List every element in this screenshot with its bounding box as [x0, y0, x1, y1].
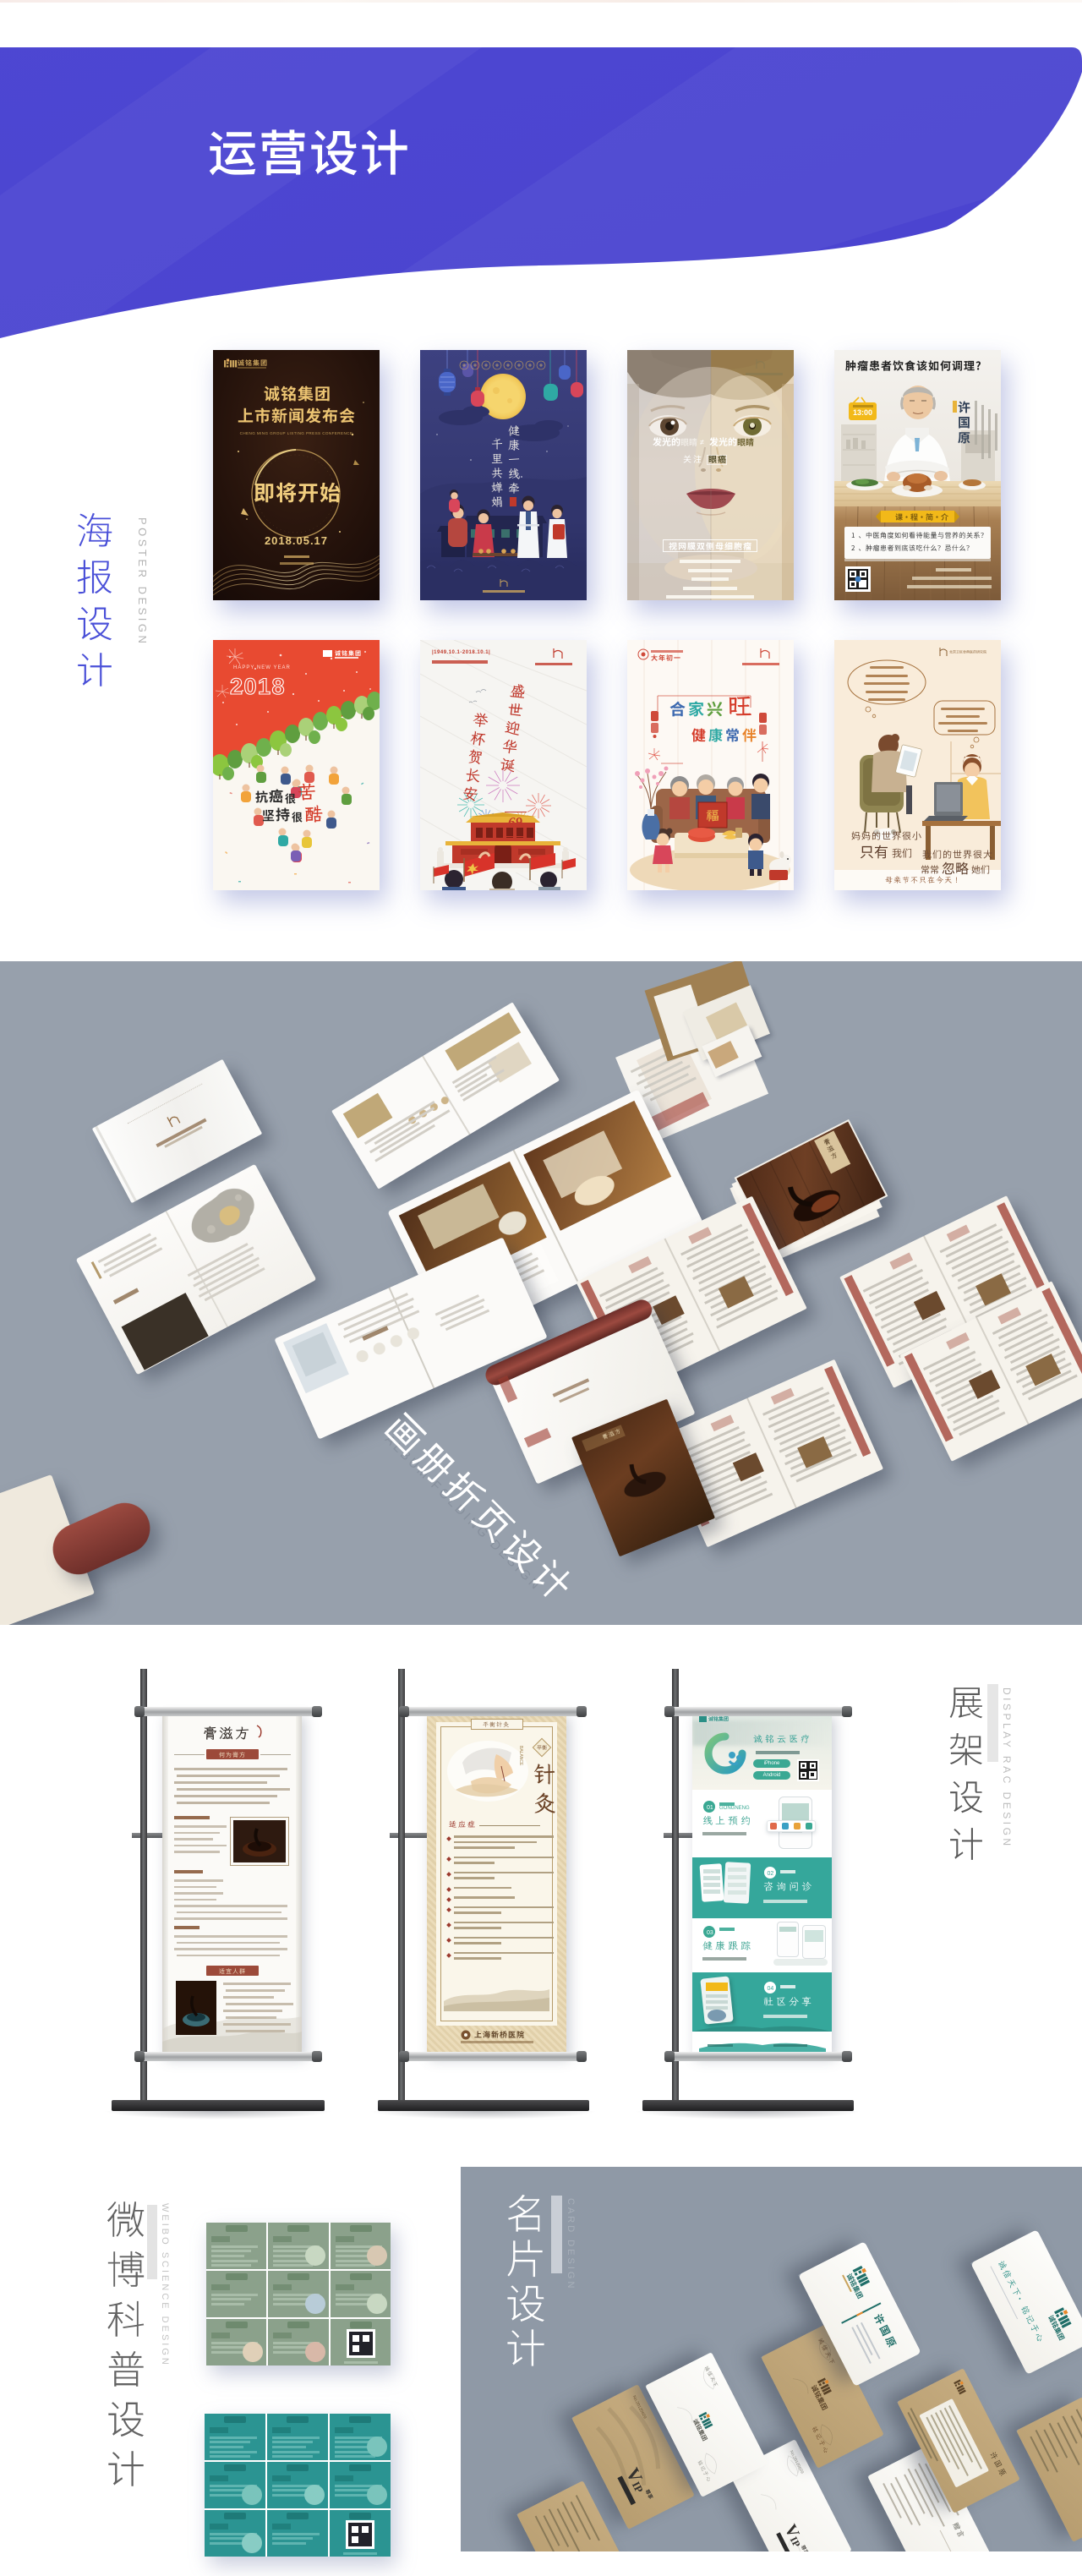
svg-text:01: 01 — [707, 1805, 713, 1811]
svg-text:04: 04 — [768, 1986, 774, 1992]
svg-text:03: 03 — [707, 1930, 713, 1936]
svg-text:02: 02 — [768, 1871, 774, 1877]
svg-text:GONGNENG: GONGNENG — [719, 1806, 750, 1811]
